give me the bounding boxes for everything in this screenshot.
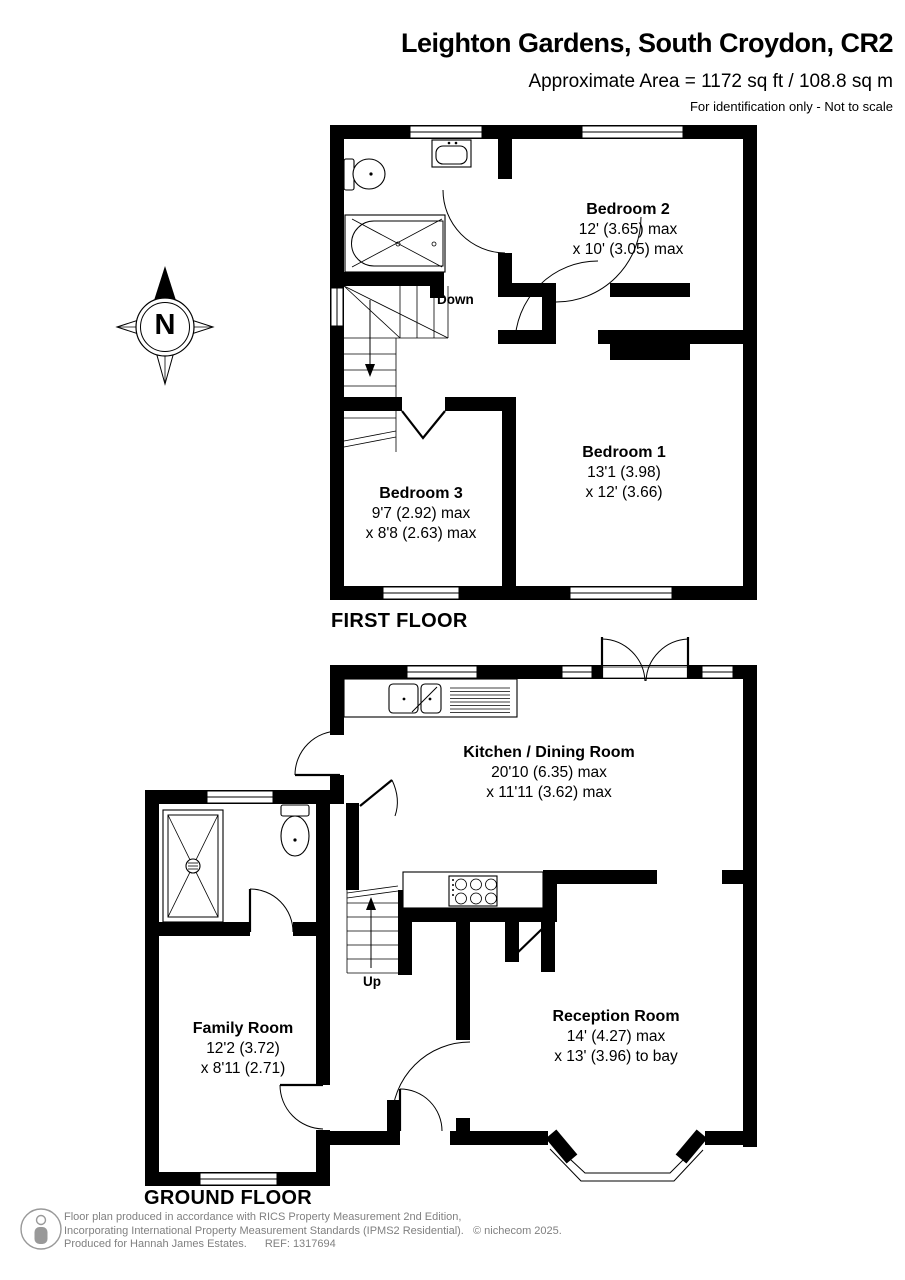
- stairs-down-label: Down: [437, 292, 474, 307]
- window: [702, 666, 733, 678]
- page-title: Leighton Gardens, South Croydon, CR2: [401, 28, 893, 59]
- hob-icon: [403, 872, 543, 908]
- up-arrow-icon: [366, 897, 376, 910]
- footer-line-1: Floor plan produced in accordance with R…: [64, 1211, 464, 1225]
- floorplan-page: Leighton Gardens, South Croydon, CR2 App…: [0, 0, 905, 1280]
- ground-floor-stairs: [347, 886, 398, 973]
- french-doors: [602, 637, 688, 681]
- window: [582, 126, 683, 138]
- window: [383, 587, 459, 599]
- ground-floor-walls: [145, 665, 757, 1186]
- compass-north-label: N: [155, 309, 176, 342]
- floorplan-drawing: [0, 0, 905, 1280]
- footer-line-3: Produced for Hannah James Estates.: [64, 1238, 247, 1252]
- room-label-kitchen-dining: Kitchen / Dining Room 20'10 (6.35) max x…: [463, 743, 635, 803]
- approximate-area: Approximate Area = 1172 sq ft / 108.8 sq…: [528, 71, 893, 93]
- copyright: © nichecom 2025.: [473, 1225, 562, 1237]
- room-label-bedroom-1: Bedroom 1 13'1 (3.98) x 12' (3.66): [582, 443, 666, 503]
- window: [207, 791, 273, 803]
- window: [570, 587, 672, 599]
- shower-icon: [163, 810, 223, 922]
- footer: Floor plan produced in accordance with R…: [64, 1211, 464, 1252]
- bathroom-door-arc: [443, 190, 505, 253]
- bathroom-fixtures: [344, 140, 471, 272]
- wc-door: [250, 889, 293, 932]
- sink-icon: [432, 140, 471, 167]
- first-floor-caption: FIRST FLOOR: [331, 610, 468, 633]
- reception-door: [392, 1042, 470, 1120]
- down-arrow-icon: [365, 364, 375, 377]
- window: [407, 666, 477, 678]
- front-door: [400, 1089, 442, 1131]
- person-icon: [21, 1209, 61, 1249]
- toilet-icon: [344, 159, 385, 190]
- room-label-bedroom-2: Bedroom 2 12' (3.65) max x 10' (3.05) ma…: [573, 200, 684, 260]
- ground-floor-caption: GROUND FLOOR: [144, 1187, 312, 1210]
- room-label-bedroom-3: Bedroom 3 9'7 (2.92) max x 8'8 (2.63) ma…: [366, 484, 477, 544]
- kitchen-counter-sink-icon: [344, 679, 517, 717]
- wc-fixtures: [163, 805, 309, 922]
- stairs-up-label: Up: [363, 974, 381, 989]
- bath-icon: [345, 215, 445, 272]
- footer-ref: REF: 1317694: [265, 1238, 336, 1252]
- room-label-reception: Reception Room 14' (4.27) max x 13' (3.9…: [552, 1007, 679, 1067]
- window: [200, 1173, 277, 1185]
- room-label-family: Family Room 12'2 (3.72) x 8'11 (2.71): [193, 1019, 293, 1079]
- bedroom3-bifold-door: [402, 411, 445, 438]
- toilet-icon: [281, 805, 309, 856]
- kitchen-hall-door: [360, 780, 397, 816]
- family-room-door: [280, 1085, 323, 1129]
- window: [562, 666, 592, 678]
- window: [410, 126, 482, 138]
- window: [331, 288, 343, 326]
- disclaimer: For identification only - Not to scale: [690, 99, 893, 114]
- side-door: [295, 731, 340, 775]
- footer-line-2: Incorporating International Property Mea…: [64, 1225, 464, 1239]
